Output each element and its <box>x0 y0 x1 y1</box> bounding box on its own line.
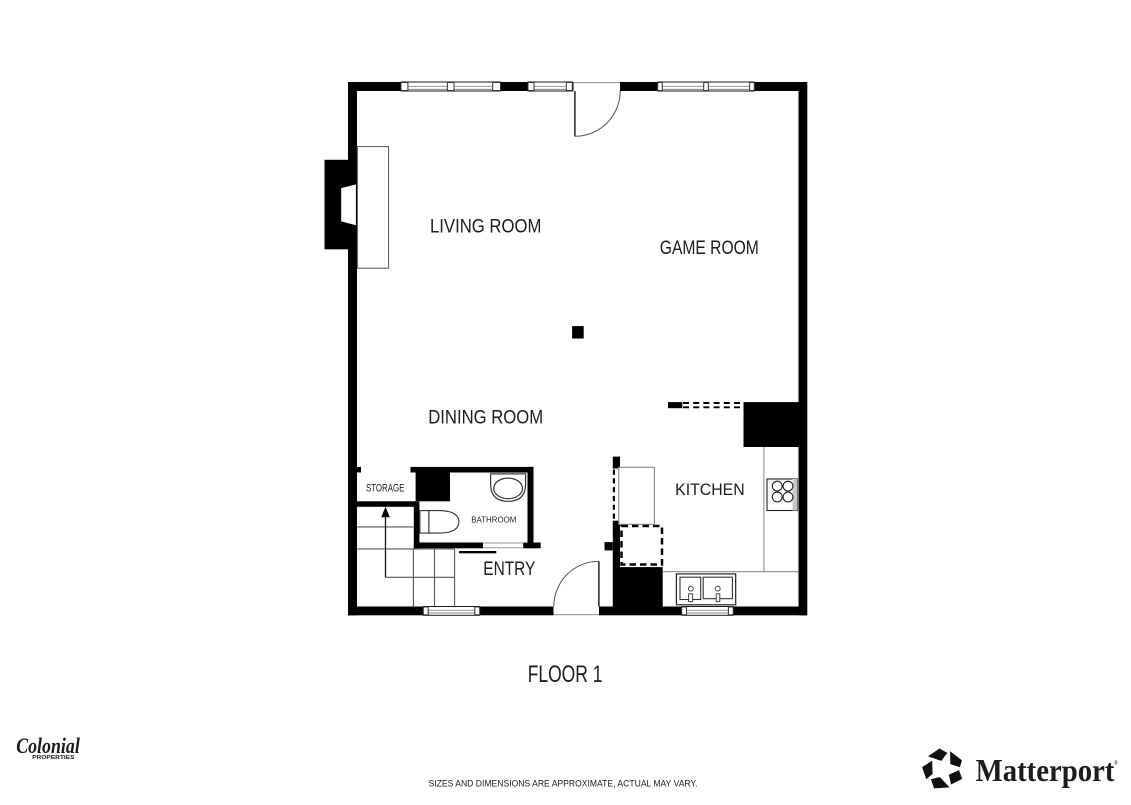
svg-text:Matterport: Matterport <box>976 753 1115 788</box>
svg-text:SIZES AND DIMENSIONS ARE APPRO: SIZES AND DIMENSIONS ARE APPROXIMATE, AC… <box>429 778 698 788</box>
svg-text:KITCHEN: KITCHEN <box>675 480 745 499</box>
svg-text:GAME ROOM: GAME ROOM <box>660 238 759 259</box>
svg-text:FLOOR 1: FLOOR 1 <box>528 661 603 688</box>
svg-text:STORAGE: STORAGE <box>366 482 405 494</box>
svg-text:ENTRY: ENTRY <box>483 559 535 580</box>
svg-text:DINING ROOM: DINING ROOM <box>428 408 543 429</box>
svg-text:LIVING ROOM: LIVING ROOM <box>430 217 541 238</box>
svg-text:BATHROOM: BATHROOM <box>471 515 516 525</box>
svg-text:PROPERTIES: PROPERTIES <box>32 755 75 761</box>
svg-text:®: ® <box>1114 760 1119 767</box>
